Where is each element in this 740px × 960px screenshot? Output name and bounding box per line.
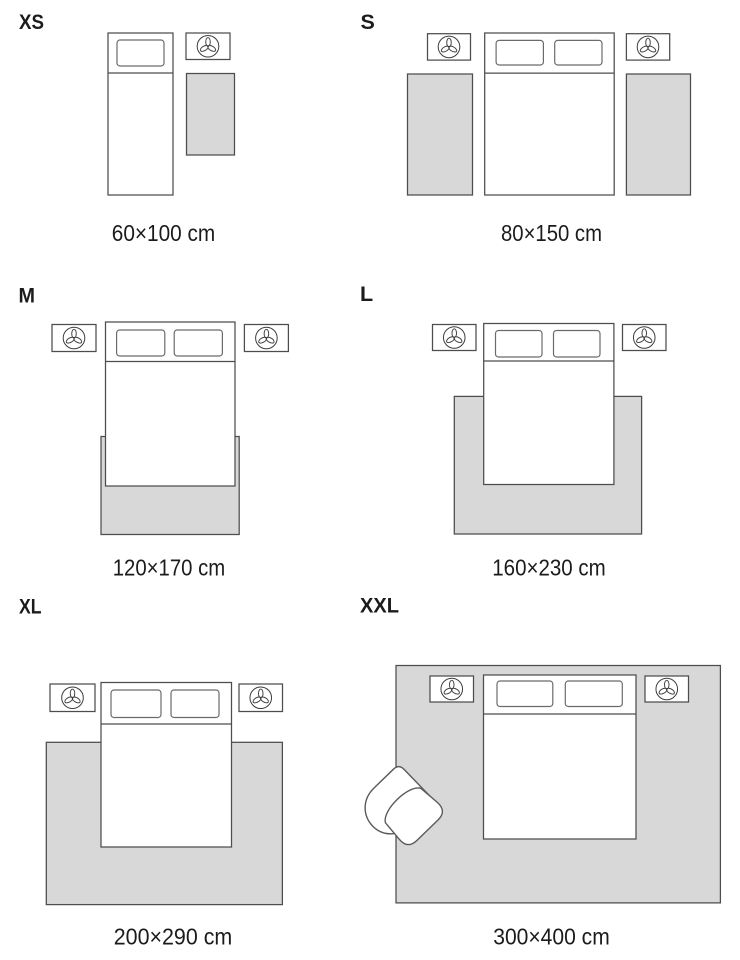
svg-text:300×400 cm: 300×400 cm [493,924,610,950]
svg-text:XS: XS [19,10,44,34]
svg-text:XXL: XXL [360,594,399,618]
svg-text:S: S [361,10,375,34]
svg-text:60×100 cm: 60×100 cm [112,220,216,246]
svg-text:120×170 cm: 120×170 cm [113,555,226,581]
svg-text:M: M [19,284,36,308]
svg-text:L: L [360,282,373,306]
svg-text:200×290 cm: 200×290 cm [114,924,233,950]
svg-text:XL: XL [19,595,42,619]
svg-text:80×150 cm: 80×150 cm [501,220,602,246]
svg-text:160×230 cm: 160×230 cm [492,555,606,581]
